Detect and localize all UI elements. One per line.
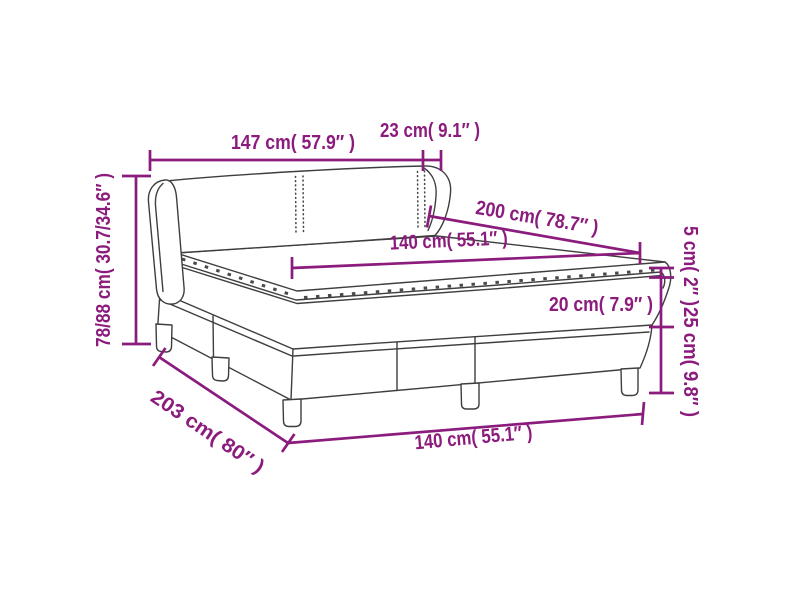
dim-topper-height-label: 5 cm( 2″ ) <box>679 226 701 306</box>
dim-headboard-width: 147 cm( 57.9″ ) 23 cm( 9.1″ ) <box>150 120 480 171</box>
base-rim-left <box>161 300 293 356</box>
base-top-foot-edge <box>293 325 652 349</box>
dim-total-height: 78/88 cm( 30.7/34.6″ ) <box>93 173 151 347</box>
dim-base-width: 140 cm( 55.1″ ) <box>288 402 644 454</box>
leg-mid-left <box>212 357 229 381</box>
leg-front-right <box>461 383 479 409</box>
dim-total-height-label: 78/88 cm( 30.7/34.6″ ) <box>93 173 115 347</box>
dim-base-width-label: 140 cm( 55.1″ ) <box>414 422 534 455</box>
base-seam-1 <box>213 316 214 358</box>
dim-mattress-thickness-label: 20 cm( 7.9″ ) <box>549 294 653 316</box>
dim-headboard-depth-label: 23 cm( 9.1″ ) <box>380 120 480 142</box>
diagram-canvas: 147 cm( 57.9″ ) 23 cm( 9.1″ ) 78/88 cm( … <box>0 0 800 600</box>
leg-foot-right <box>621 368 638 396</box>
base-rim-foot <box>294 332 649 356</box>
dim-base-height-label: 25 cm( 9.8″ ) <box>679 307 701 417</box>
dim-headboard-width-label: 147 cm( 57.9″ ) <box>231 132 355 154</box>
leg-front-corner <box>283 399 301 427</box>
bed-dimension-diagram: 147 cm( 57.9″ ) 23 cm( 9.1″ ) 78/88 cm( … <box>0 0 800 600</box>
dim-total-length-label: 203 cm( 80″ ) <box>146 386 268 478</box>
